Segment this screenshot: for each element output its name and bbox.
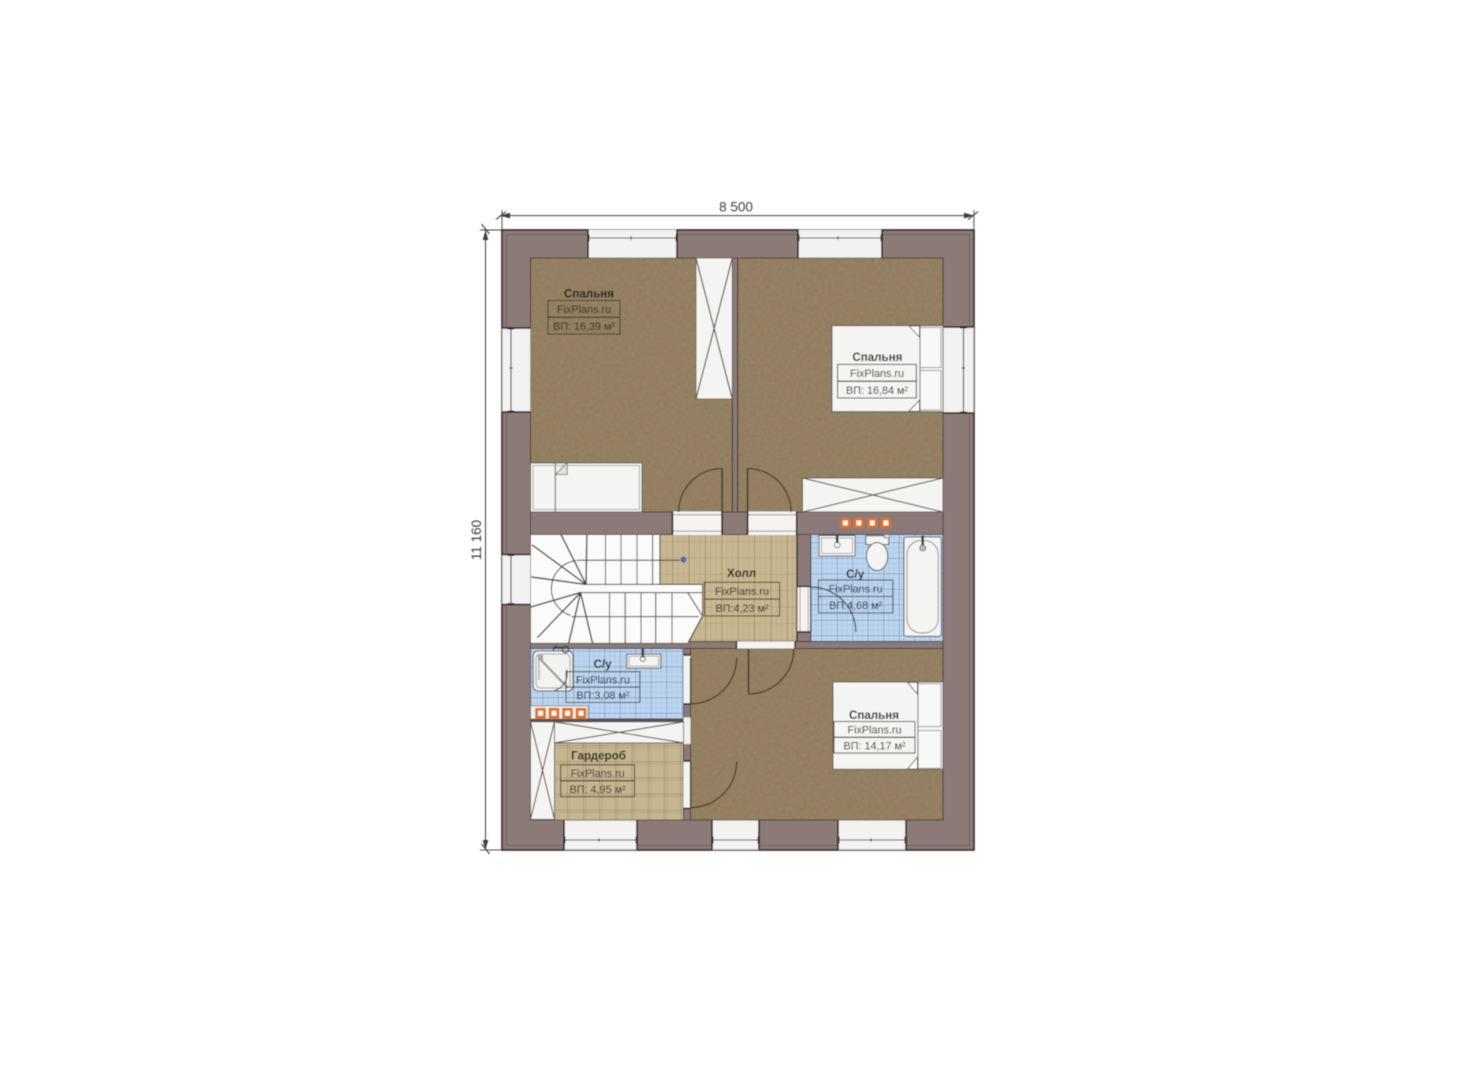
svg-text:ВП: 16,84 м²: ВП: 16,84 м² xyxy=(846,385,908,397)
svg-text:С/у: С/у xyxy=(846,568,865,581)
svg-text:FixPlans.ru: FixPlans.ru xyxy=(576,675,630,687)
svg-text:Холл: Холл xyxy=(727,567,756,580)
svg-text:8 500: 8 500 xyxy=(719,200,753,215)
svg-text:Гардероб: Гардероб xyxy=(571,750,626,763)
svg-text:Спальня: Спальня xyxy=(849,709,899,722)
svg-text:ВП:3,08 м²: ВП:3,08 м² xyxy=(576,690,629,702)
svg-text:С/у: С/у xyxy=(594,658,613,671)
svg-text:ВП: 16,39 м²: ВП: 16,39 м² xyxy=(553,321,615,333)
svg-text:FixPlans.ru: FixPlans.ru xyxy=(557,304,611,316)
svg-text:Спальня: Спальня xyxy=(852,351,902,364)
svg-text:FixPlans.ru: FixPlans.ru xyxy=(847,725,901,737)
svg-text:Спальня: Спальня xyxy=(564,288,614,301)
svg-text:ВП:4,23 м²: ВП:4,23 м² xyxy=(716,603,769,615)
svg-text:FixPlans.ru: FixPlans.ru xyxy=(715,586,769,598)
svg-text:FixPlans.ru: FixPlans.ru xyxy=(571,768,625,780)
svg-text:11 160: 11 160 xyxy=(469,520,484,560)
svg-text:ВП:4,68 м²: ВП:4,68 м² xyxy=(829,600,882,612)
svg-text:FixPlans.ru: FixPlans.ru xyxy=(829,584,883,596)
svg-text:ВП: 14,17 м²: ВП: 14,17 м² xyxy=(844,741,906,753)
svg-text:FixPlans.ru: FixPlans.ru xyxy=(850,368,904,380)
svg-text:ВП: 4,95 м²: ВП: 4,95 м² xyxy=(570,784,626,796)
